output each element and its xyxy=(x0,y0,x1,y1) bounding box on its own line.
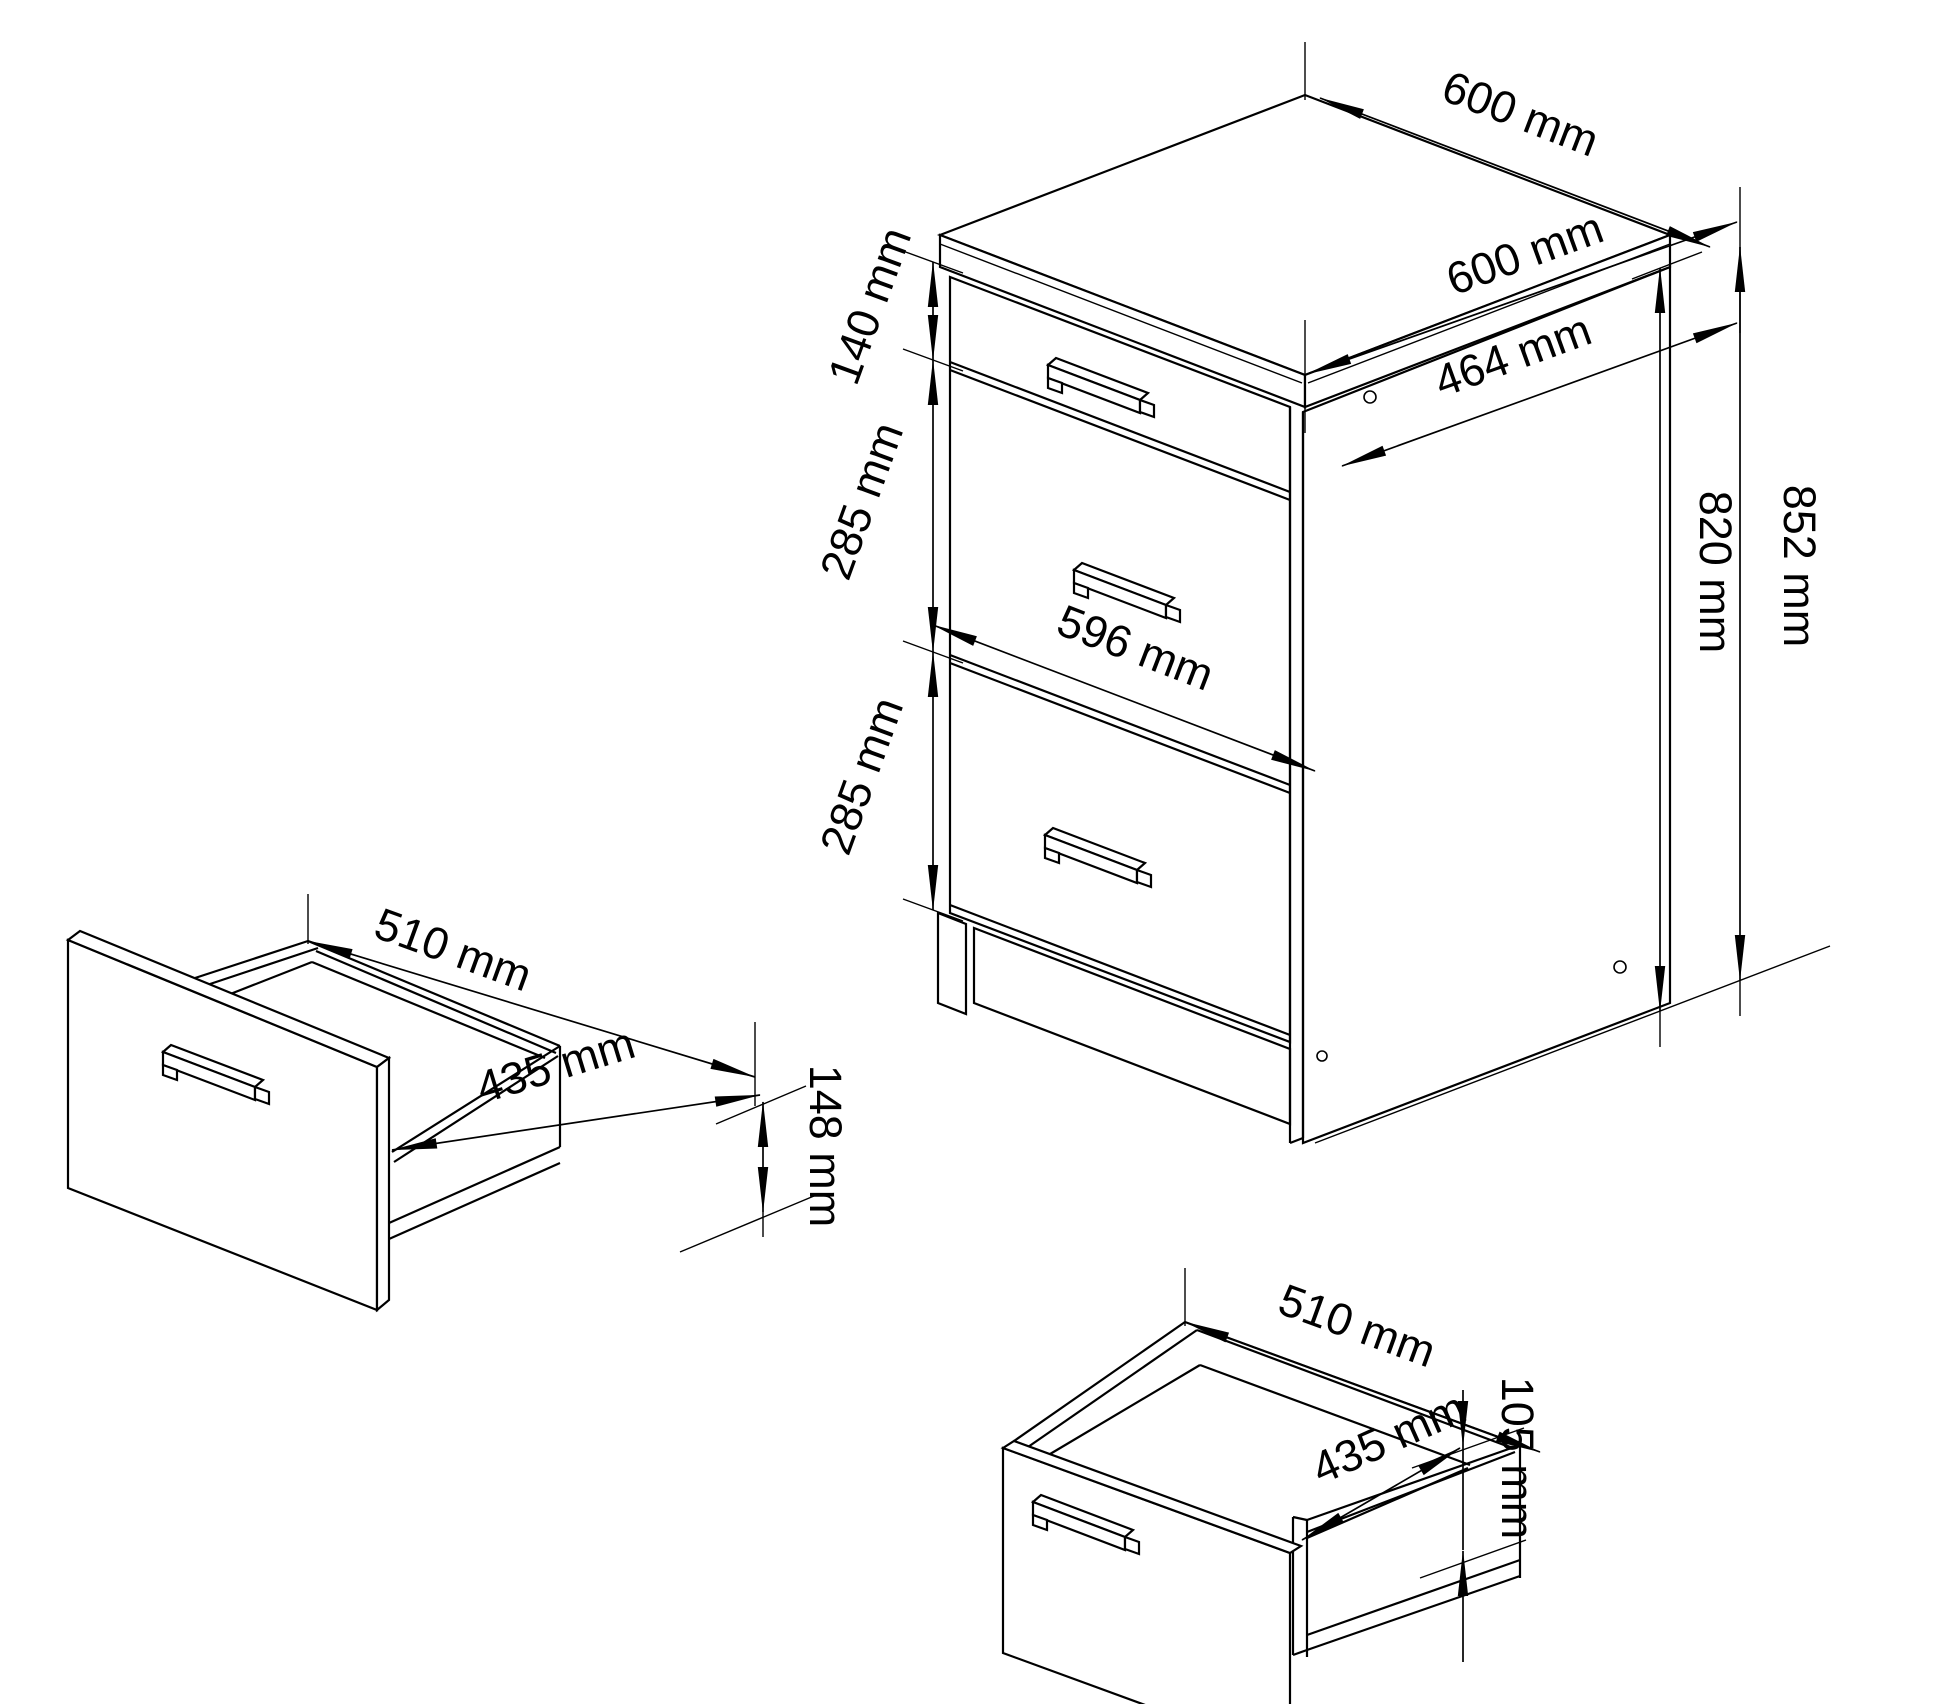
drawing-line xyxy=(392,1095,760,1150)
dim-drawer-left-height: 148 mm xyxy=(800,1065,851,1228)
dim-cabinet-drawer3-height: 285 mm xyxy=(810,691,914,861)
dim-cabinet-drawer2-height: 285 mm xyxy=(810,416,914,586)
drawing-line xyxy=(716,1086,806,1124)
drawing-line xyxy=(1003,1448,1290,1704)
dim-drawer-bottom-height: 105 mm xyxy=(1492,1377,1543,1540)
dim-cabinet-top-depth: 600 mm xyxy=(1436,61,1606,167)
cabinet-right-panel xyxy=(1303,267,1670,1143)
dim-cabinet-total-height: 852 mm xyxy=(1774,485,1825,648)
drawer-bottom-view: 510 mm 435 mm 105 mm xyxy=(1003,1268,1543,1704)
drawing-line xyxy=(1293,1517,1307,1520)
drawing-line xyxy=(195,941,308,978)
drawer-left-view: 510 mm 435 mm 148 mm xyxy=(68,894,851,1310)
drawer-left-front xyxy=(68,931,389,1310)
cabinet-view: 600 mm 600 mm 464 mm 140 mm 285 mm 285 m… xyxy=(810,42,1830,1143)
drawing-line xyxy=(1293,1650,1307,1655)
furniture-technical-drawing: 600 mm 600 mm 464 mm 140 mm 285 mm 285 m… xyxy=(0,0,1946,1704)
dim-cabinet-drawer1-height: 140 mm xyxy=(818,221,922,391)
drawing-line xyxy=(389,1163,560,1239)
drawing-line xyxy=(377,1058,389,1310)
dim-drawer-left-width: 435 mm xyxy=(470,1017,640,1113)
drawing-line xyxy=(1014,1322,1185,1441)
drawing-line xyxy=(1307,1560,1520,1635)
drawing-line xyxy=(389,1147,560,1223)
dim-cabinet-carcass-height: 820 mm xyxy=(1690,491,1741,654)
drawing-line xyxy=(1420,1540,1526,1578)
drawing-line xyxy=(1040,1365,1200,1460)
dim-drawer-bottom-depth: 510 mm xyxy=(1272,1274,1442,1378)
drawing-line xyxy=(1028,1330,1197,1447)
cabinet-left-leg xyxy=(938,913,966,1014)
drawing-line xyxy=(680,1196,814,1252)
drawing-line xyxy=(1290,1138,1303,1143)
drawing-line xyxy=(1307,1576,1520,1650)
drawer-bottom-front xyxy=(1003,1441,1301,1704)
